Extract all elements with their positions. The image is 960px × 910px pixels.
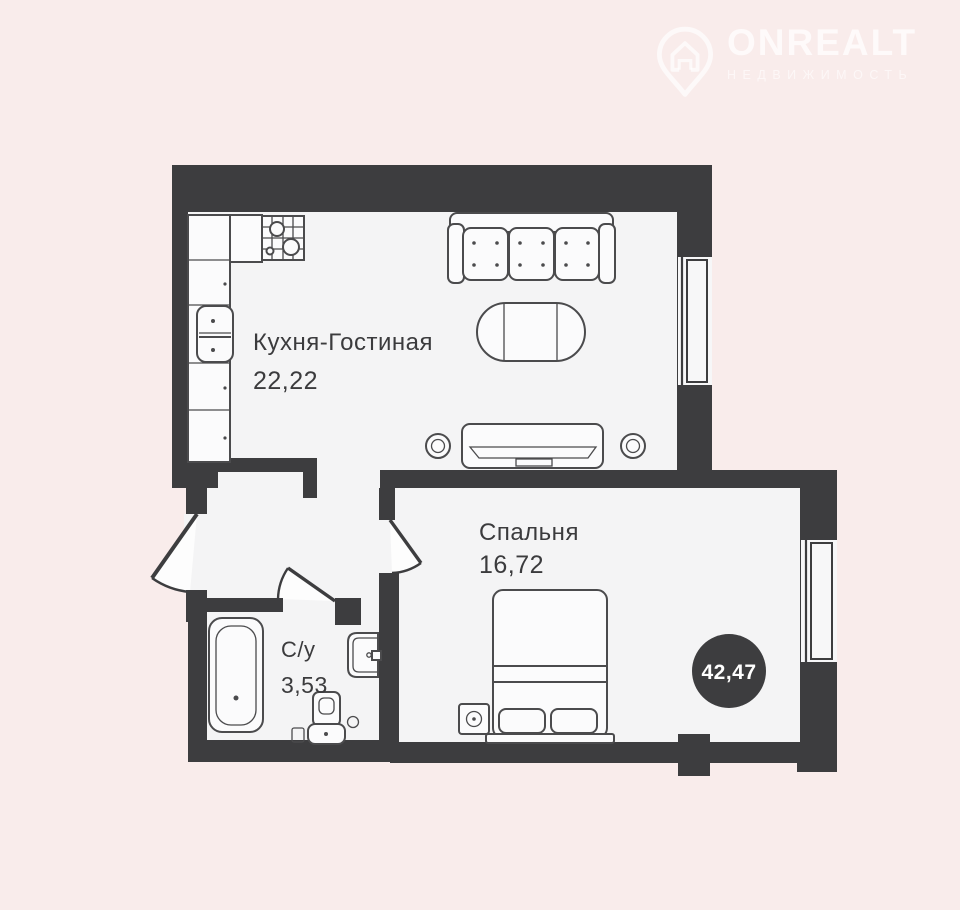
- floor-plan: 42,47 Кухня-Гостиная 22,22 Спальня 16,72…: [0, 0, 960, 910]
- room-label-kitchen-living: Кухня-Гостиная: [253, 329, 433, 356]
- room-label-bathroom: С/у: [281, 637, 316, 662]
- tv-stand: [462, 424, 603, 468]
- entrance-door-arc: [152, 514, 197, 592]
- floor-plan-page: ONREALT НЕДВИЖИМОСТЬ: [0, 0, 960, 910]
- washbasin-icon: [348, 633, 381, 677]
- nightstand-lamp: [459, 704, 489, 734]
- kitchen-sink-icon: [197, 306, 233, 362]
- room-area-bedroom: 16,72: [479, 551, 544, 579]
- kitchen-window: [678, 257, 712, 385]
- speaker-icon-right: [621, 434, 645, 458]
- bedroom-window: [801, 540, 837, 662]
- total-area-value: 42,47: [701, 661, 756, 684]
- room-area-kitchen-living: 22,22: [253, 367, 318, 395]
- sofa: [448, 213, 615, 283]
- coffee-table: [477, 303, 585, 361]
- room-area-bathroom: 3,53: [281, 672, 328, 698]
- bed: [486, 590, 614, 743]
- speaker-icon-left: [426, 434, 450, 458]
- stove-icon: [262, 216, 304, 260]
- bathtub-icon: [209, 618, 263, 732]
- room-label-bedroom: Спальня: [479, 519, 579, 546]
- total-area-badge: 42,47: [692, 634, 766, 708]
